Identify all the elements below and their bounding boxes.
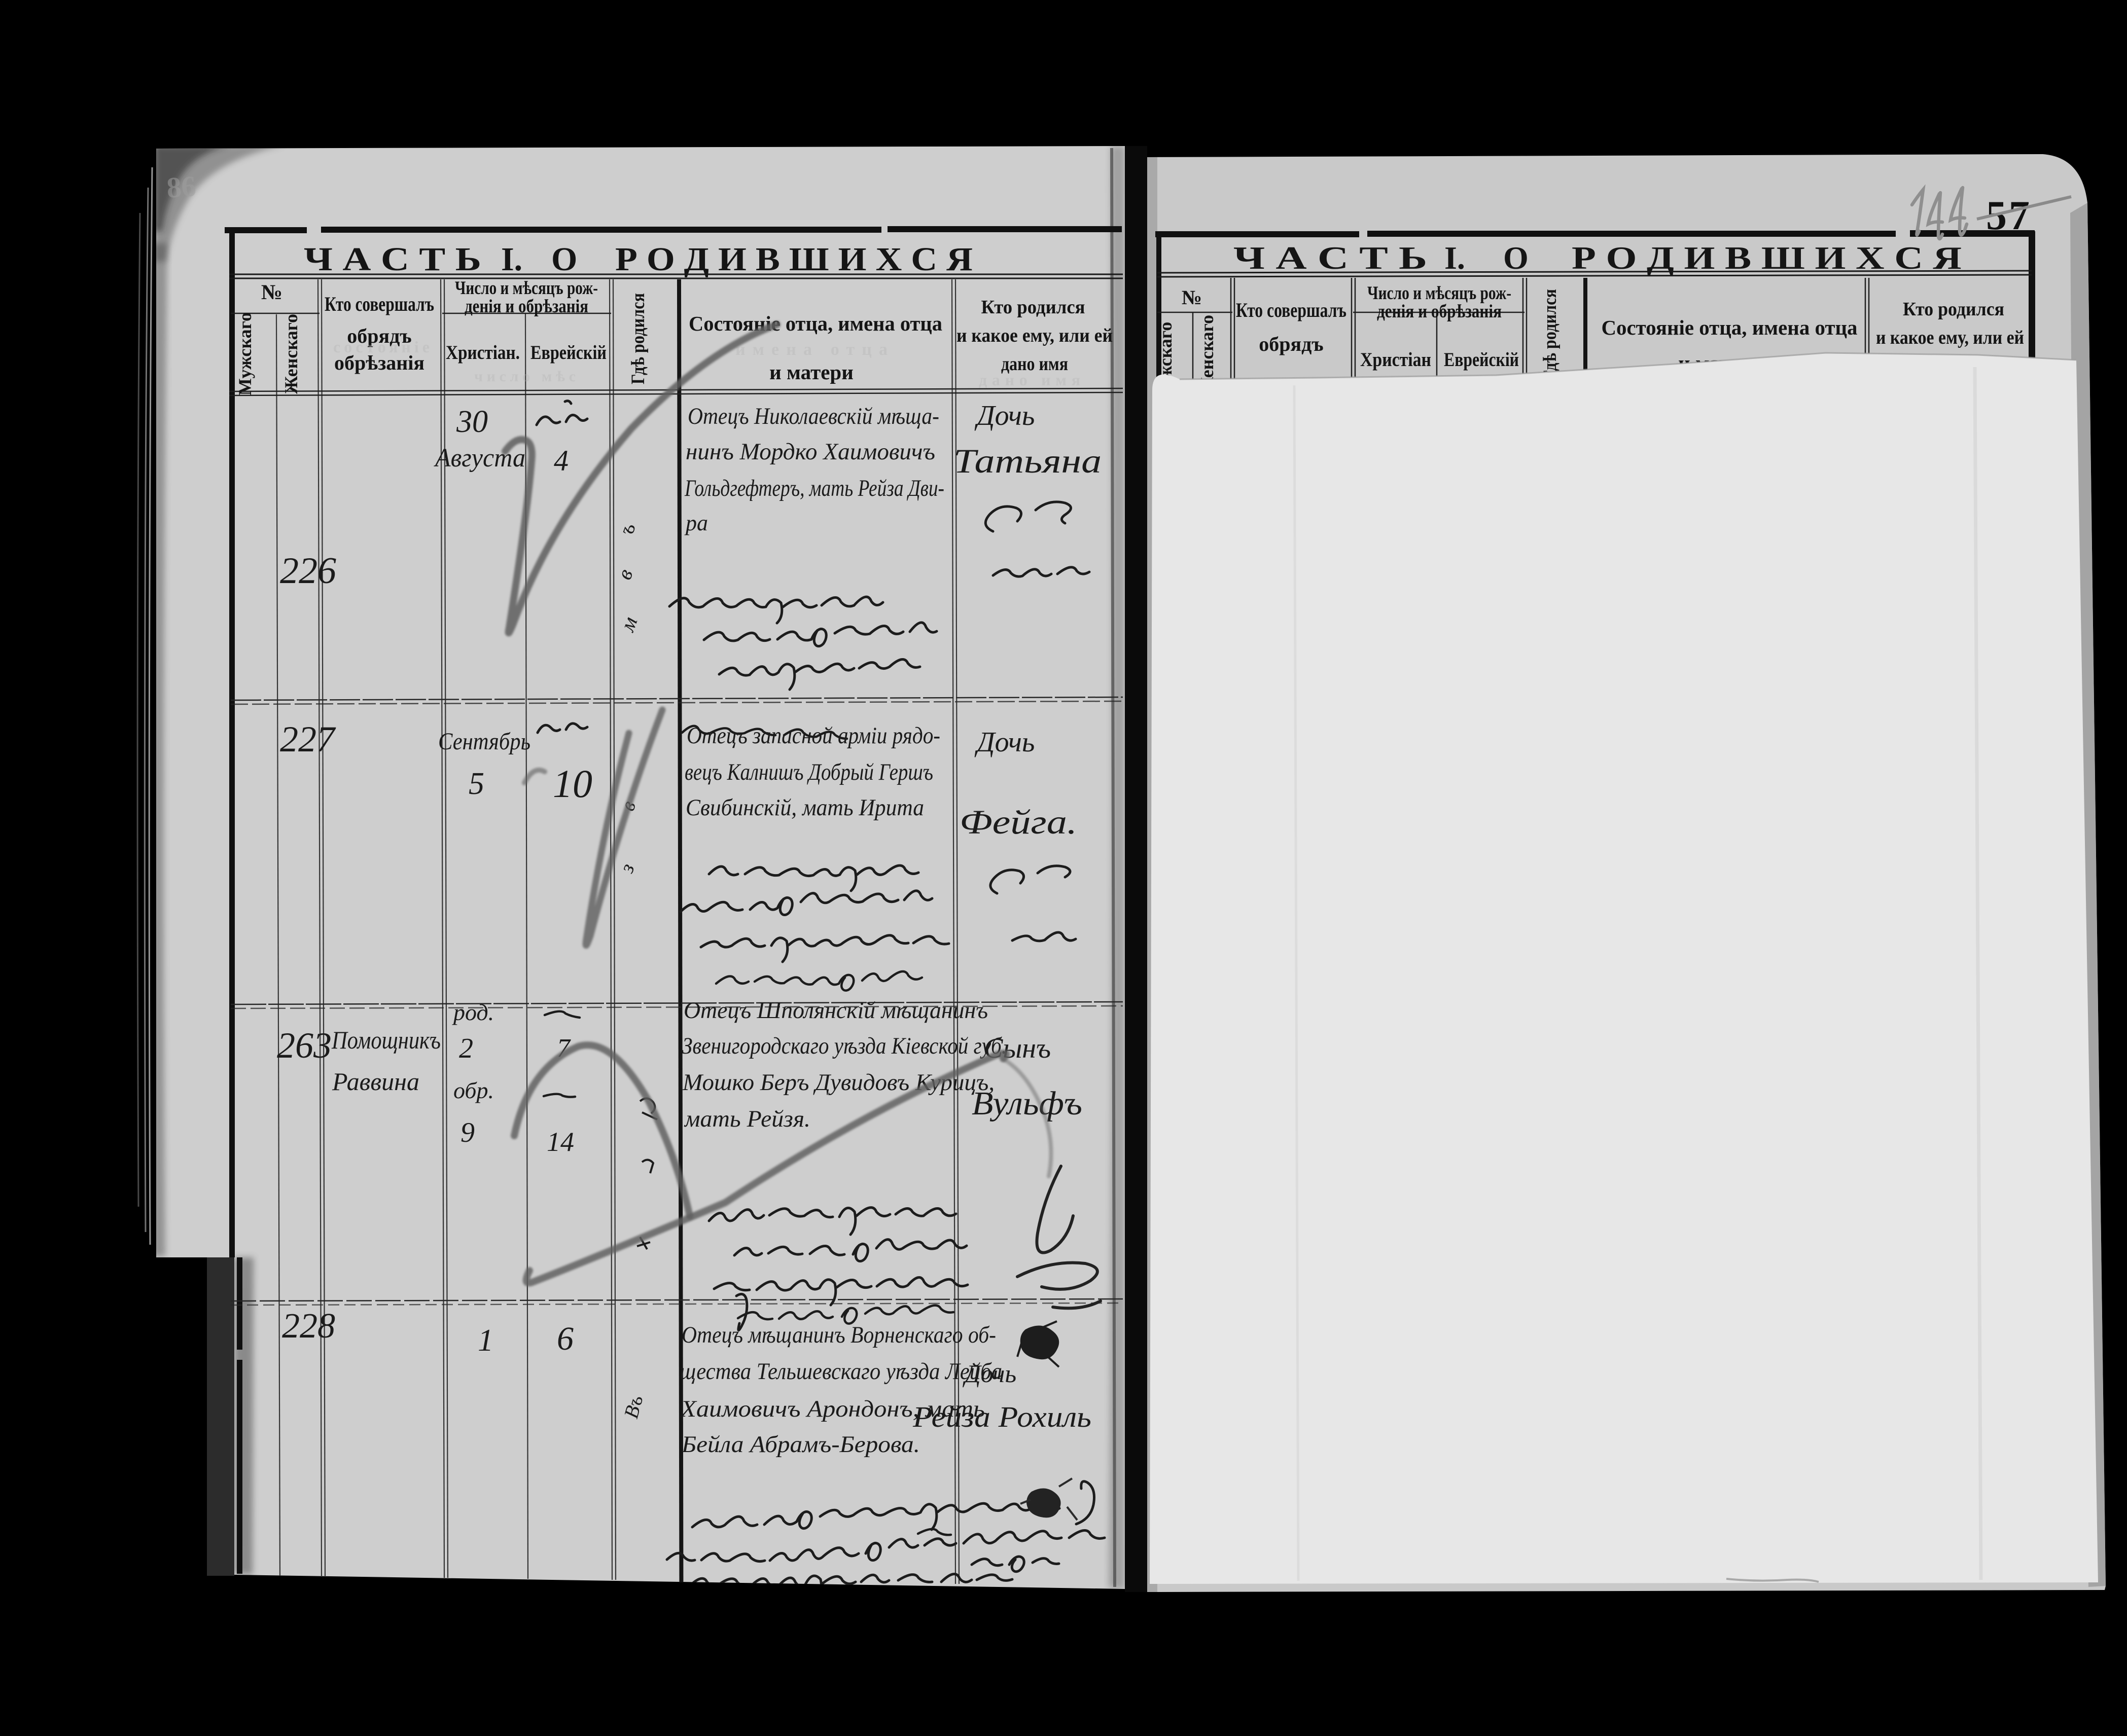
svg-text:Еврейскій: Еврейскій	[1444, 349, 1519, 371]
svg-text:9: 9	[460, 1117, 475, 1148]
svg-text:І.: І.	[1444, 240, 1465, 276]
svg-text:Татьяна: Татьяна	[953, 442, 1102, 480]
svg-text:Бейла Абрамъ-Берова.: Бейла Абрамъ-Берова.	[681, 1431, 920, 1458]
svg-text:№: №	[261, 281, 282, 304]
svg-text:228: 228	[282, 1307, 335, 1346]
svg-text:Христіан.: Христіан.	[446, 342, 520, 364]
svg-text:имена отца: имена отца	[735, 340, 888, 359]
svg-text:число мѣс: число мѣс	[474, 368, 576, 385]
svg-text:и какое ему, или ей: и какое ему, или ей	[956, 325, 1113, 346]
svg-text:Состояніе отца, имена отца: Состояніе отца, имена отца	[1602, 316, 1858, 339]
svg-text:Дочь: Дочь	[974, 400, 1035, 431]
svg-text:ра: ра	[684, 511, 708, 535]
svg-text:Фейга.: Фейга.	[960, 803, 1077, 841]
svg-text:и какое ему, или ей: и какое ему, или ей	[1876, 327, 2024, 348]
svg-text:86: 86	[165, 169, 197, 204]
svg-text:1: 1	[478, 1323, 493, 1358]
svg-text:Вульфъ: Вульфъ	[972, 1085, 1082, 1122]
svg-text:Число и мѣсяцъ рож-: Число и мѣсяцъ рож-	[1367, 283, 1511, 304]
svg-text:5: 5	[469, 767, 484, 801]
svg-text:Кто совершалъ: Кто совершалъ	[325, 293, 434, 315]
svg-text:№: №	[1182, 286, 1202, 309]
svg-text:Отецъ запасной арміи рядо-: Отецъ запасной арміи рядо-	[687, 722, 940, 749]
svg-text:Звенигородскаго уѣзда Кіевской: Звенигородскаго уѣзда Кіевской губ.	[682, 1033, 1007, 1059]
svg-text:и матери: и матери	[769, 360, 854, 384]
svg-text:Отецъ мѣщанинъ Ворненскаго об-: Отецъ мѣщанинъ Ворненскаго об-	[682, 1322, 996, 1348]
svg-text:Дочь: Дочь	[963, 1359, 1016, 1388]
svg-text:227: 227	[280, 719, 336, 759]
svg-text:щества Тельшевскаго уѣзда Лейб: щества Тельшевскаго уѣзда Лейба	[680, 1358, 1002, 1385]
svg-text:Ч А С Т Ь: Ч А С Т Ь	[1233, 240, 1427, 276]
svg-text:Раввина: Раввина	[332, 1067, 419, 1096]
svg-text:нинъ Мордко Хаимовичъ: нинъ Мордко Хаимовичъ	[686, 439, 935, 465]
svg-text:Рейза Рохиль: Рейза Рохиль	[912, 1400, 1091, 1433]
svg-text:Помощникъ: Помощникъ	[331, 1026, 441, 1054]
svg-text:І.: І.	[501, 241, 522, 278]
svg-text:Свибинскій, мать Ирита: Свибинскій, мать Ирита	[686, 794, 924, 821]
svg-text:мать Рейзя.: мать Рейзя.	[684, 1106, 810, 1132]
svg-text:О: О	[1503, 240, 1529, 276]
svg-text:4: 4	[554, 444, 569, 477]
svg-text:денія и обрѣзанія: денія и обрѣзанія	[465, 296, 588, 317]
svg-text:Кто совершалъ: Кто совершалъ	[1236, 299, 1346, 321]
svg-text:О: О	[551, 241, 577, 278]
svg-text:14: 14	[547, 1127, 574, 1157]
svg-text:Отецъ Шполянскій мѣщанинъ: Отецъ Шполянскій мѣщанинъ	[684, 997, 988, 1024]
svg-text:6: 6	[557, 1320, 574, 1357]
svg-text:Мужскаго: Мужскаго	[235, 312, 255, 395]
svg-text:денія и обрѣзанія: денія и обрѣзанія	[1377, 301, 1502, 322]
svg-text:30: 30	[456, 405, 488, 439]
svg-text:Гдѣ родился: Гдѣ родился	[628, 293, 649, 384]
svg-text:Кто родился: Кто родился	[981, 297, 1085, 318]
svg-text:Состояніе отца, имена отца: Состояніе отца, имена отца	[689, 312, 942, 335]
svg-text:Кто родился: Кто родился	[1903, 299, 2004, 320]
svg-text:263: 263	[277, 1025, 332, 1066]
svg-text:226: 226	[280, 550, 336, 592]
svg-text:Еврейскій: Еврейскій	[530, 342, 607, 364]
svg-text:Сентябрь: Сентябрь	[438, 728, 530, 755]
svg-text:Ч А С Т Ь: Ч А С Т Ь	[304, 241, 481, 278]
svg-text:Дочь: Дочь	[974, 727, 1035, 758]
svg-text:Гдѣ родился: Гдѣ родился	[1540, 289, 1561, 380]
svg-text:обрядъ: обрядъ	[1259, 333, 1323, 355]
svg-text:род.: род.	[452, 999, 494, 1025]
svg-text:Гольдгефтеръ, мать Рейза Дви-: Гольдгефтеръ, мать Рейза Дви-	[684, 475, 944, 501]
svg-text:Отецъ Николаевскій мѣща-: Отецъ Николаевскій мѣща-	[688, 403, 939, 429]
svg-text:Женскаго: Женскаго	[281, 314, 301, 394]
svg-text:вецъ Калнишъ Добрый Гершъ: вецъ Калнишъ Добрый Гершъ	[685, 759, 933, 785]
svg-text:состояніе: состояніе	[333, 338, 430, 356]
svg-text:обр.: обр.	[453, 1077, 494, 1103]
svg-text:2: 2	[459, 1033, 473, 1064]
svg-text:Христіан: Христіан	[1360, 349, 1431, 371]
svg-text:Р О Д И В Ш И Х С Я: Р О Д И В Ш И Х С Я	[615, 241, 973, 278]
svg-text:Число и мѣсяцъ рож-: Число и мѣсяцъ рож-	[455, 278, 598, 299]
svg-text:10: 10	[553, 762, 592, 806]
